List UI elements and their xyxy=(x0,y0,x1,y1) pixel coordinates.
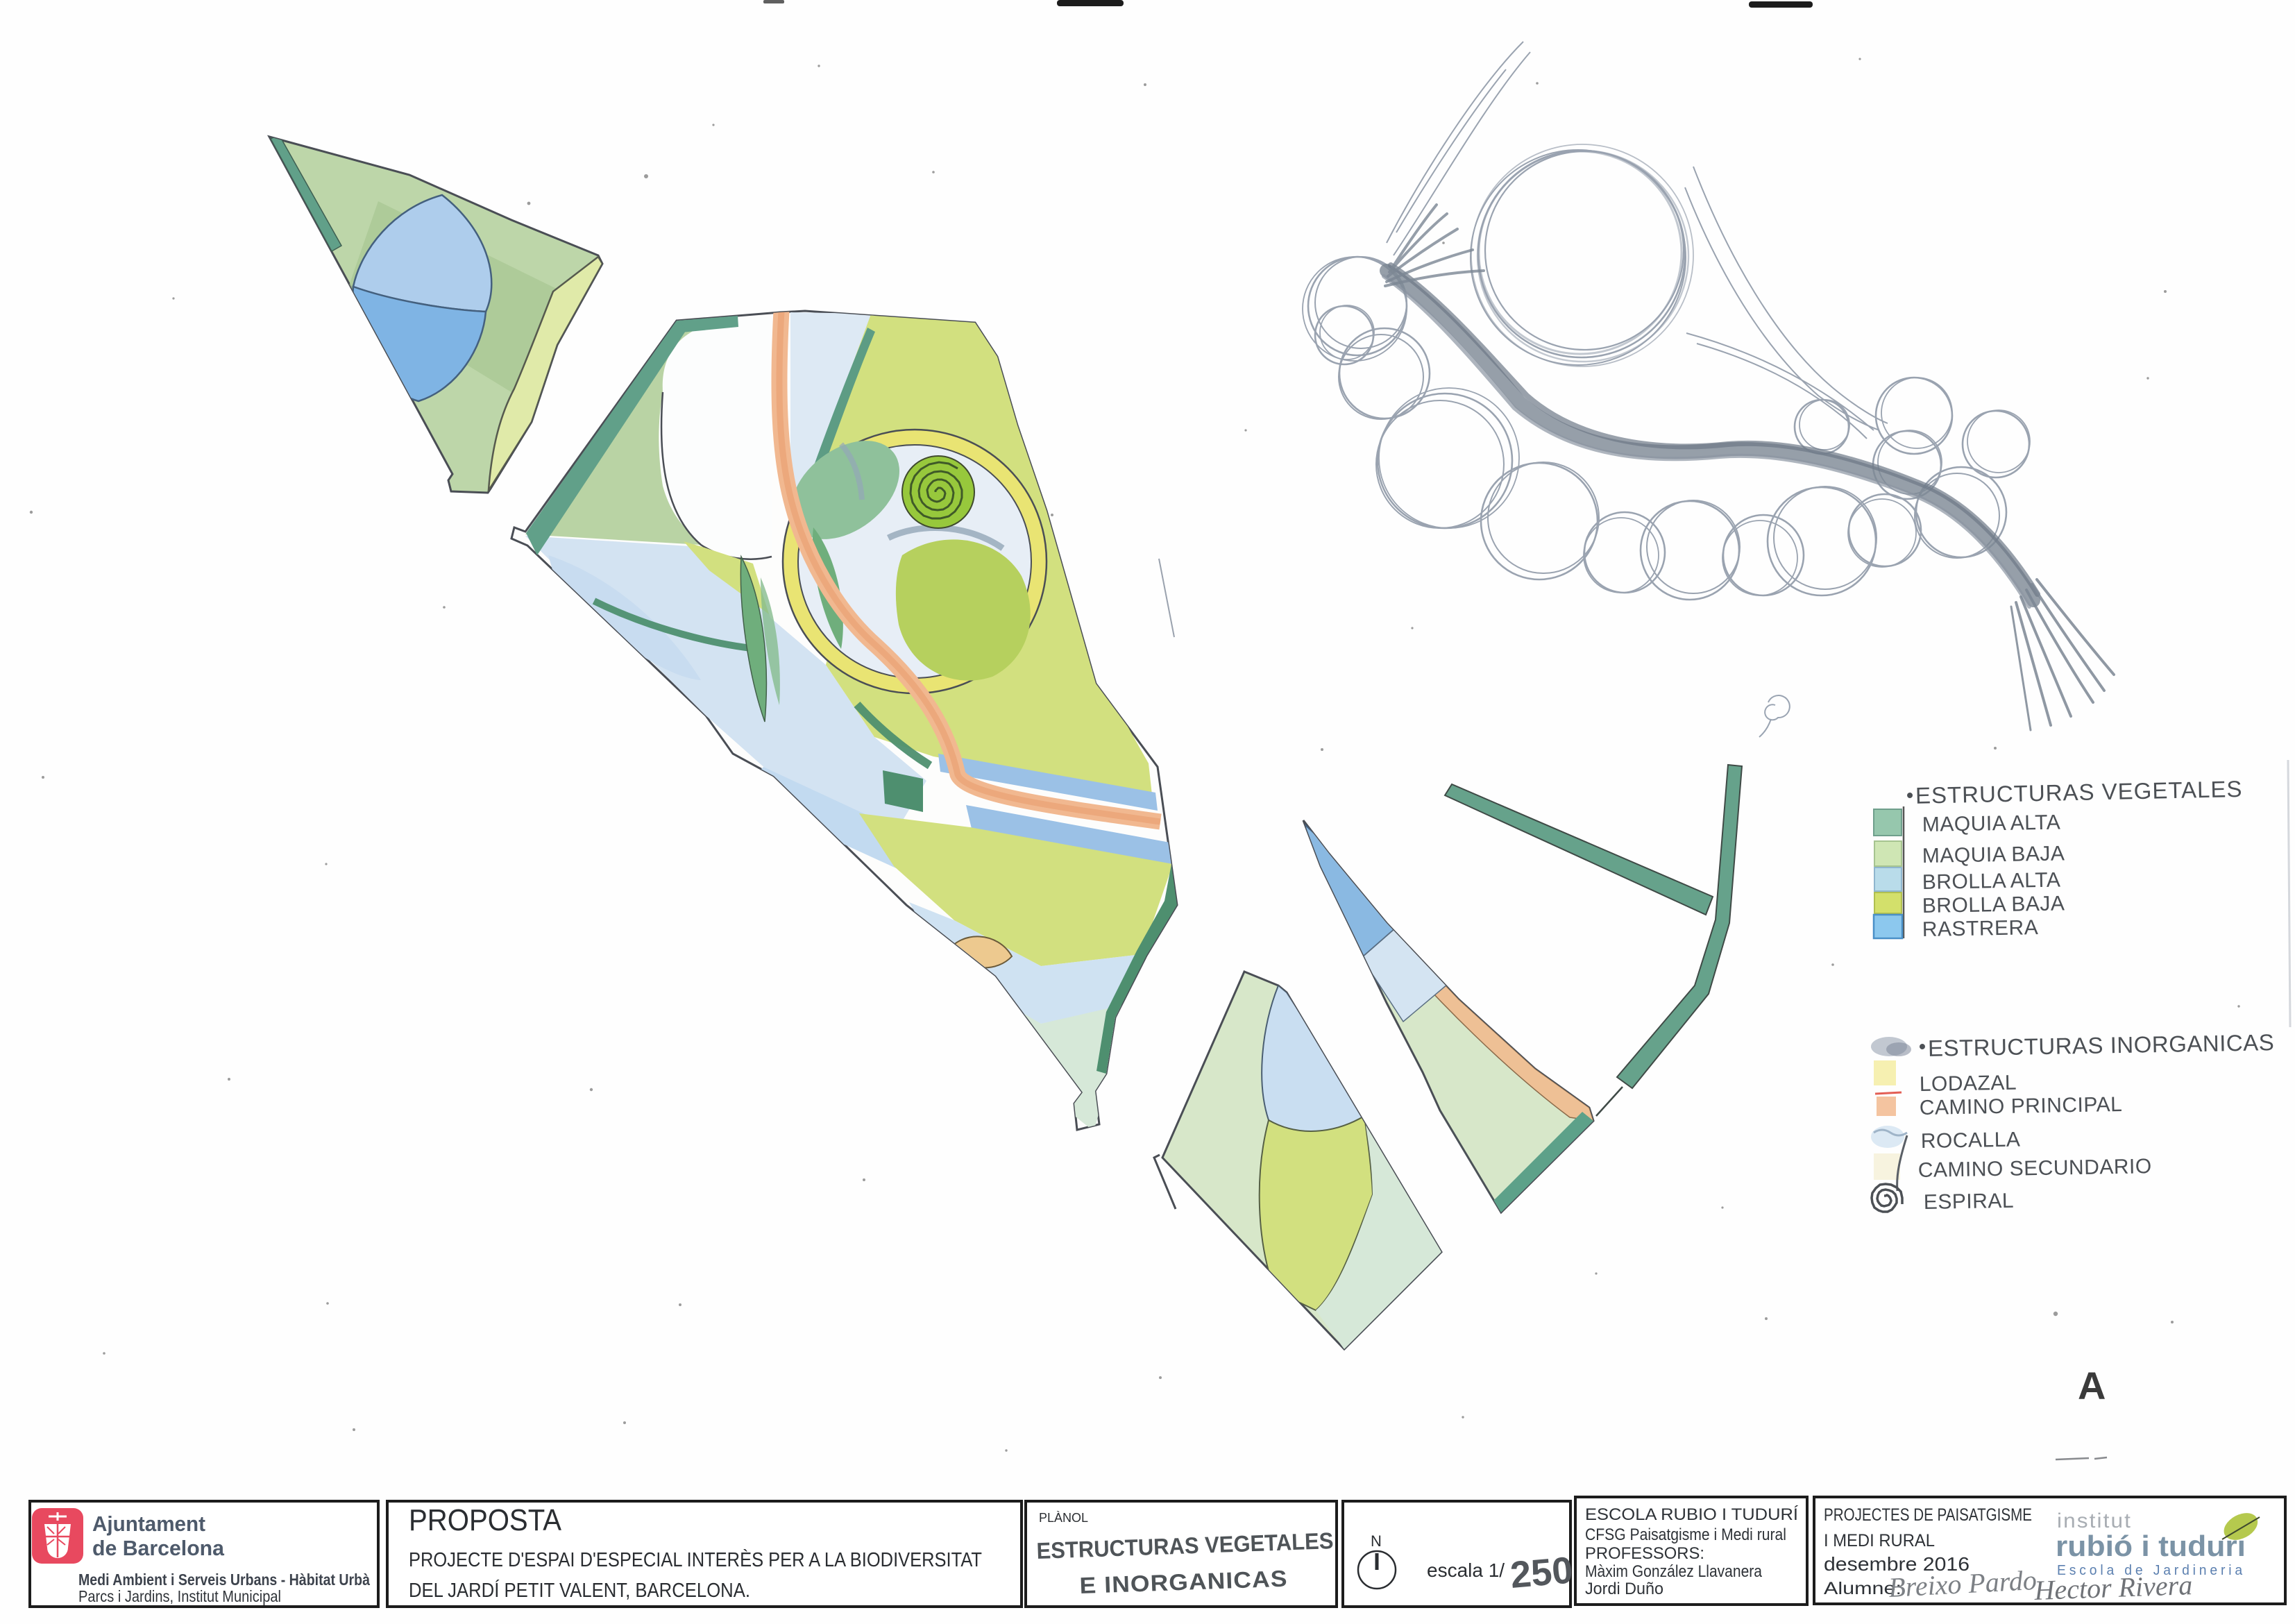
svg-text:escala 1/: escala 1/ xyxy=(1427,1559,1505,1581)
svg-text:CAMINO PRINCIPAL: CAMINO PRINCIPAL xyxy=(1920,1093,2123,1119)
svg-text:ESCOLA RUBIO I TUDURÍ: ESCOLA RUBIO I TUDURÍ xyxy=(1585,1505,1798,1524)
svg-text:PROFESSORS:: PROFESSORS: xyxy=(1585,1544,1704,1563)
svg-text:BROLLA ALTA: BROLLA ALTA xyxy=(1922,869,2061,894)
svg-text:ESPIRAL: ESPIRAL xyxy=(1924,1190,2015,1214)
svg-text:Parcs i Jardins, Institut Muni: Parcs i Jardins, Institut Municipal xyxy=(78,1587,281,1605)
svg-text:PLÀNOL: PLÀNOL xyxy=(1039,1511,1088,1525)
svg-text:CAMINO SECUNDARIO: CAMINO SECUNDARIO xyxy=(1918,1155,2152,1182)
svg-text:BROLLA BAJA: BROLLA BAJA xyxy=(1922,892,2065,917)
svg-text:RASTRERA: RASTRERA xyxy=(1922,916,2039,941)
svg-text:LODAZAL: LODAZAL xyxy=(1920,1072,2017,1096)
svg-text:PROJECTE D'ESPAI D'ESPECIAL IN: PROJECTE D'ESPAI D'ESPECIAL INTERÈS PER … xyxy=(409,1548,982,1571)
svg-text:MAQUIA BAJA: MAQUIA BAJA xyxy=(1922,842,2065,868)
svg-text:Màxim González Llavanera: Màxim González Llavanera xyxy=(1585,1562,1762,1581)
svg-text:A: A xyxy=(2078,1364,2106,1407)
svg-text:Medi Ambient i Serveis Urbans: Medi Ambient i Serveis Urbans - Hàbitat … xyxy=(78,1571,370,1589)
svg-text:250: 250 xyxy=(1509,1549,1575,1596)
svg-text:DEL JARDÍ PETIT VALENT, BARCEL: DEL JARDÍ PETIT VALENT, BARCELONA. xyxy=(409,1579,750,1602)
svg-text:rubió i tuduri: rubió i tuduri xyxy=(2056,1530,2246,1562)
svg-text:CFSG Paisatgisme i Medi rural: CFSG Paisatgisme i Medi rural xyxy=(1585,1525,1786,1544)
svg-text:PROJECTES DE PAISATGISME: PROJECTES DE PAISATGISME xyxy=(1824,1505,2032,1525)
svg-text:de Barcelona: de Barcelona xyxy=(92,1536,225,1560)
svg-text:N: N xyxy=(1371,1532,1382,1550)
svg-text:I MEDI RURAL: I MEDI RURAL xyxy=(1824,1531,1935,1550)
svg-text:Jordi Duño: Jordi Duño xyxy=(1585,1580,1663,1598)
svg-text:ROCALLA: ROCALLA xyxy=(1921,1128,2021,1153)
svg-text:Escola de Jardineria: Escola de Jardineria xyxy=(2057,1563,2246,1578)
svg-text:MAQUIA ALTA: MAQUIA ALTA xyxy=(1922,811,2061,836)
svg-text:PROPOSTA: PROPOSTA xyxy=(409,1503,562,1537)
svg-text:Ajuntament: Ajuntament xyxy=(92,1512,205,1536)
